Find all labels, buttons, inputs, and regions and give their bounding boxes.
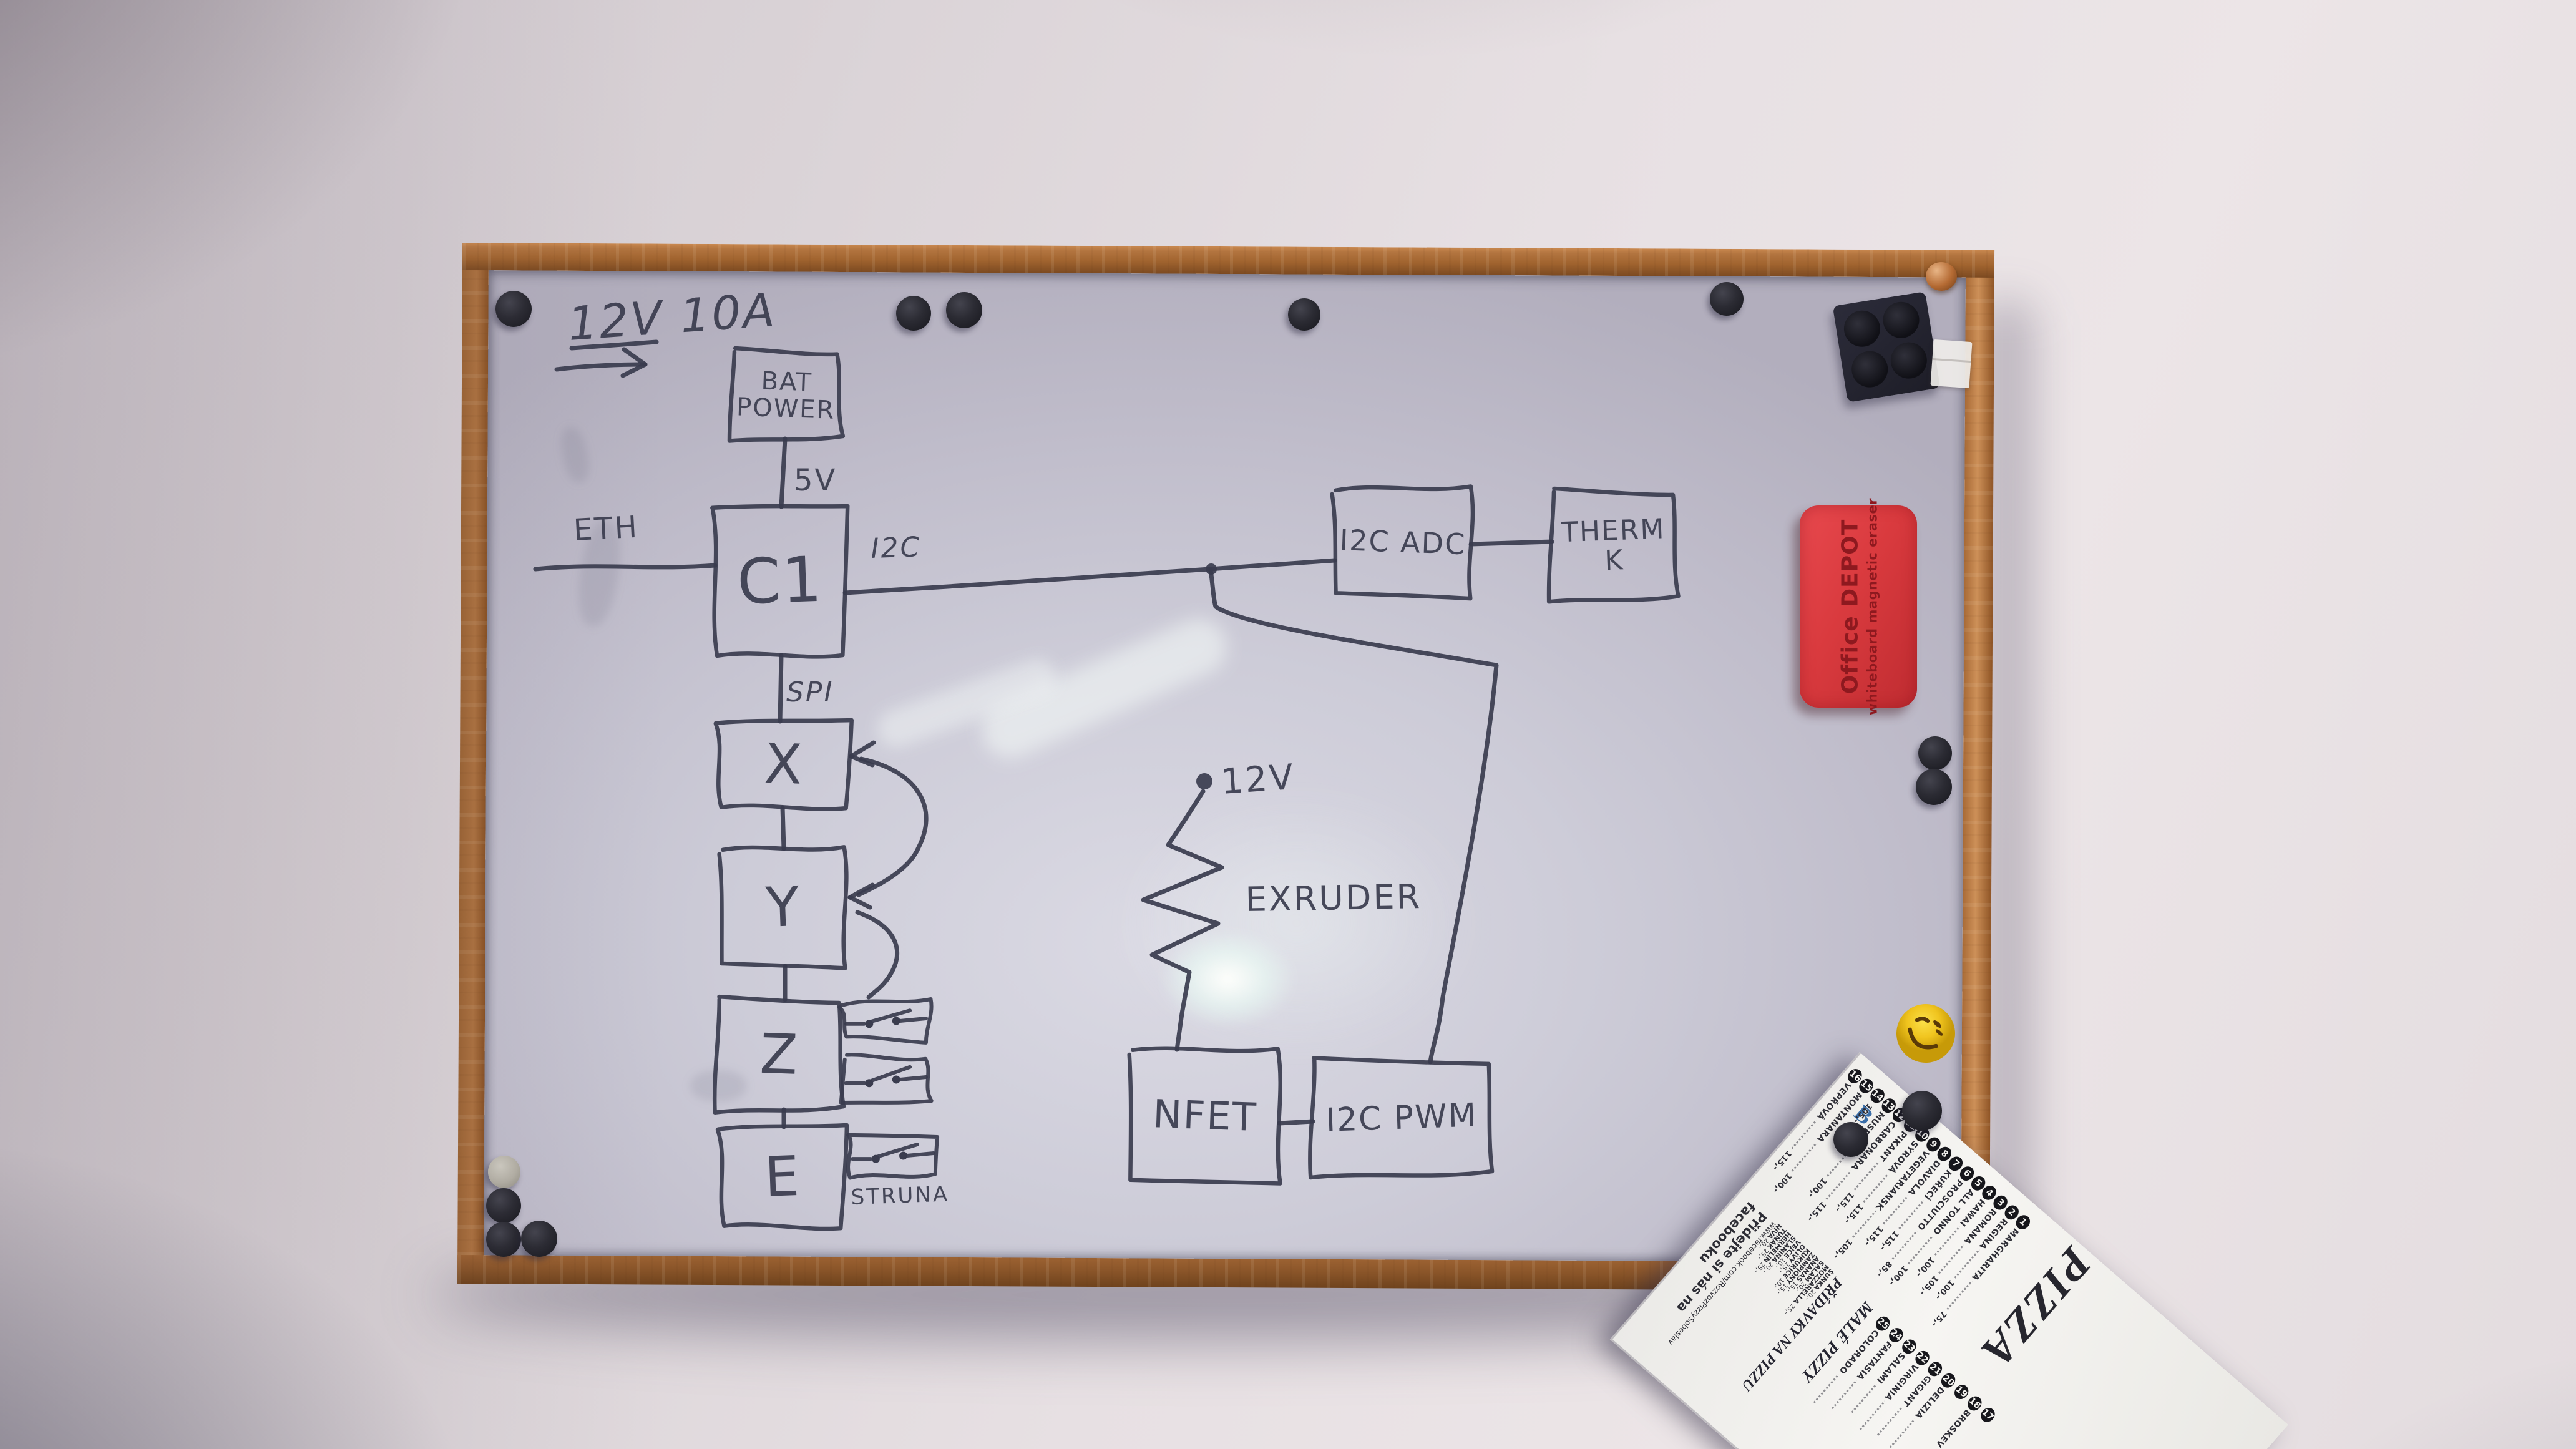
photo-scene: BATPOWERC1I2C ADCTHERMKXYZENFETI2C PWM12… (0, 0, 2576, 1449)
magnet-on-menu (1902, 1091, 1942, 1131)
smiley-magnet (1895, 1002, 1957, 1065)
magnet-on-menu (1833, 1122, 1868, 1157)
smiley-face (1895, 1002, 1957, 1065)
menu-magnet-layer (0, 0, 2576, 1449)
